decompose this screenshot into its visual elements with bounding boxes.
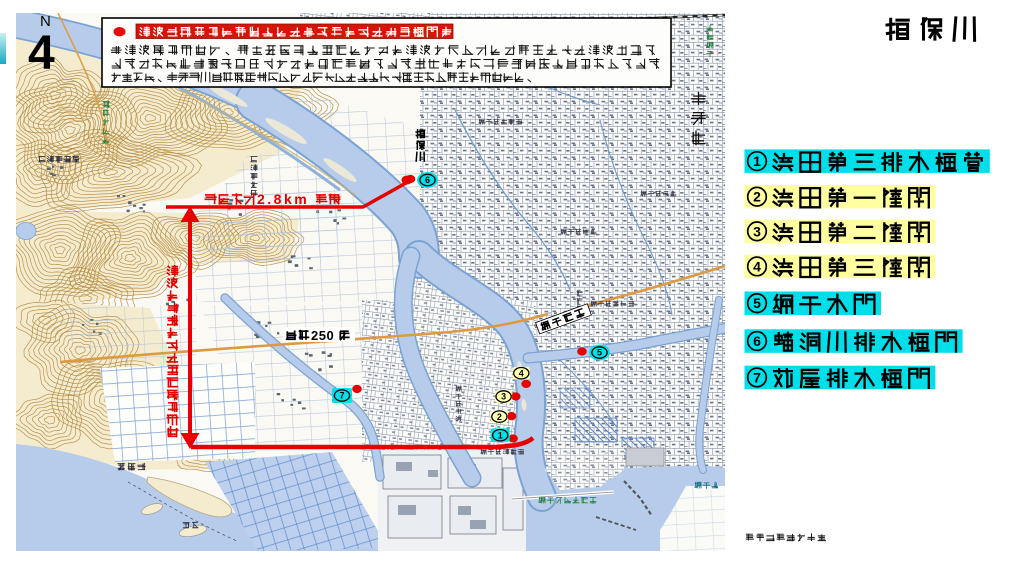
svg-text:6: 6 <box>753 333 761 349</box>
svg-text:4: 4 <box>519 368 524 378</box>
svg-text:7: 7 <box>753 369 761 385</box>
svg-text:1: 1 <box>498 430 503 440</box>
svg-text:2: 2 <box>753 189 761 205</box>
svg-text:4: 4 <box>28 27 55 80</box>
svg-text:3: 3 <box>501 392 506 402</box>
svg-text:1: 1 <box>753 153 761 169</box>
svg-text:4: 4 <box>753 258 761 274</box>
svg-text:2: 2 <box>497 412 502 422</box>
svg-text:5: 5 <box>753 295 761 311</box>
svg-text:3: 3 <box>753 223 761 239</box>
svg-text:7: 7 <box>339 391 344 401</box>
svg-text:5: 5 <box>597 348 602 358</box>
svg-text:250: 250 <box>311 328 334 343</box>
svg-text:6: 6 <box>425 175 430 185</box>
svg-text:2.8km: 2.8km <box>257 191 309 207</box>
